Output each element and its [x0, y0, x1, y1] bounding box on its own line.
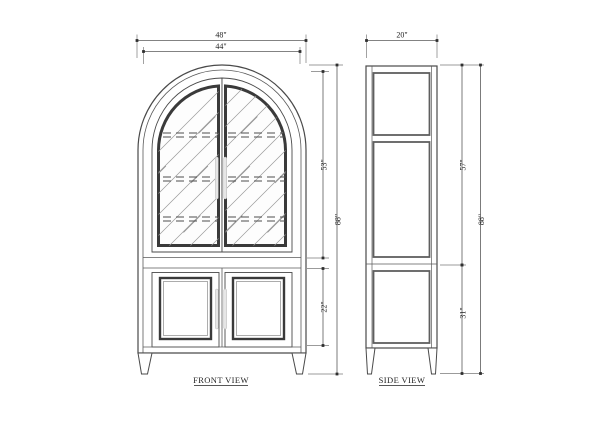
dim-side-depth: 20"	[396, 31, 407, 40]
side-view: 20" 57" 31" 88" SIDE VIEW	[366, 31, 486, 386]
cabinet-technical-drawing: 48" 44" 53" 22" 88" FRONT VIEW	[0, 0, 600, 424]
front-view-label: FRONT VIEW	[193, 375, 249, 385]
dim-front-door-width: 44"	[215, 42, 226, 51]
front-legs	[138, 353, 306, 374]
technical-drawing-page: 48" 44" 53" 22" 88" FRONT VIEW	[0, 0, 600, 424]
dim-side-upper-height: 57"	[459, 159, 468, 170]
dim-side-lower-height: 31"	[459, 307, 468, 318]
dim-front-overall-width: 48"	[215, 31, 226, 40]
front-leg-right	[292, 353, 306, 374]
front-leg-left	[138, 353, 152, 374]
handle-lower-left	[215, 289, 218, 329]
dim-front-lower-door-height: 22"	[320, 301, 329, 312]
handle-lower-right	[224, 289, 227, 329]
side-leg-right	[428, 348, 437, 374]
side-legs	[366, 348, 437, 374]
dim-front-overall-height: 88"	[334, 214, 343, 225]
side-leg-left	[366, 348, 375, 374]
dim-front-upper-door-height: 53"	[320, 159, 329, 170]
side-view-label: SIDE VIEW	[379, 375, 426, 385]
lower-doors	[143, 268, 301, 347]
handle-upper-right	[224, 157, 227, 199]
dim-side-overall-height: 88"	[477, 214, 486, 225]
handle-upper-left	[215, 157, 218, 199]
side-carcass-outline	[366, 66, 437, 348]
